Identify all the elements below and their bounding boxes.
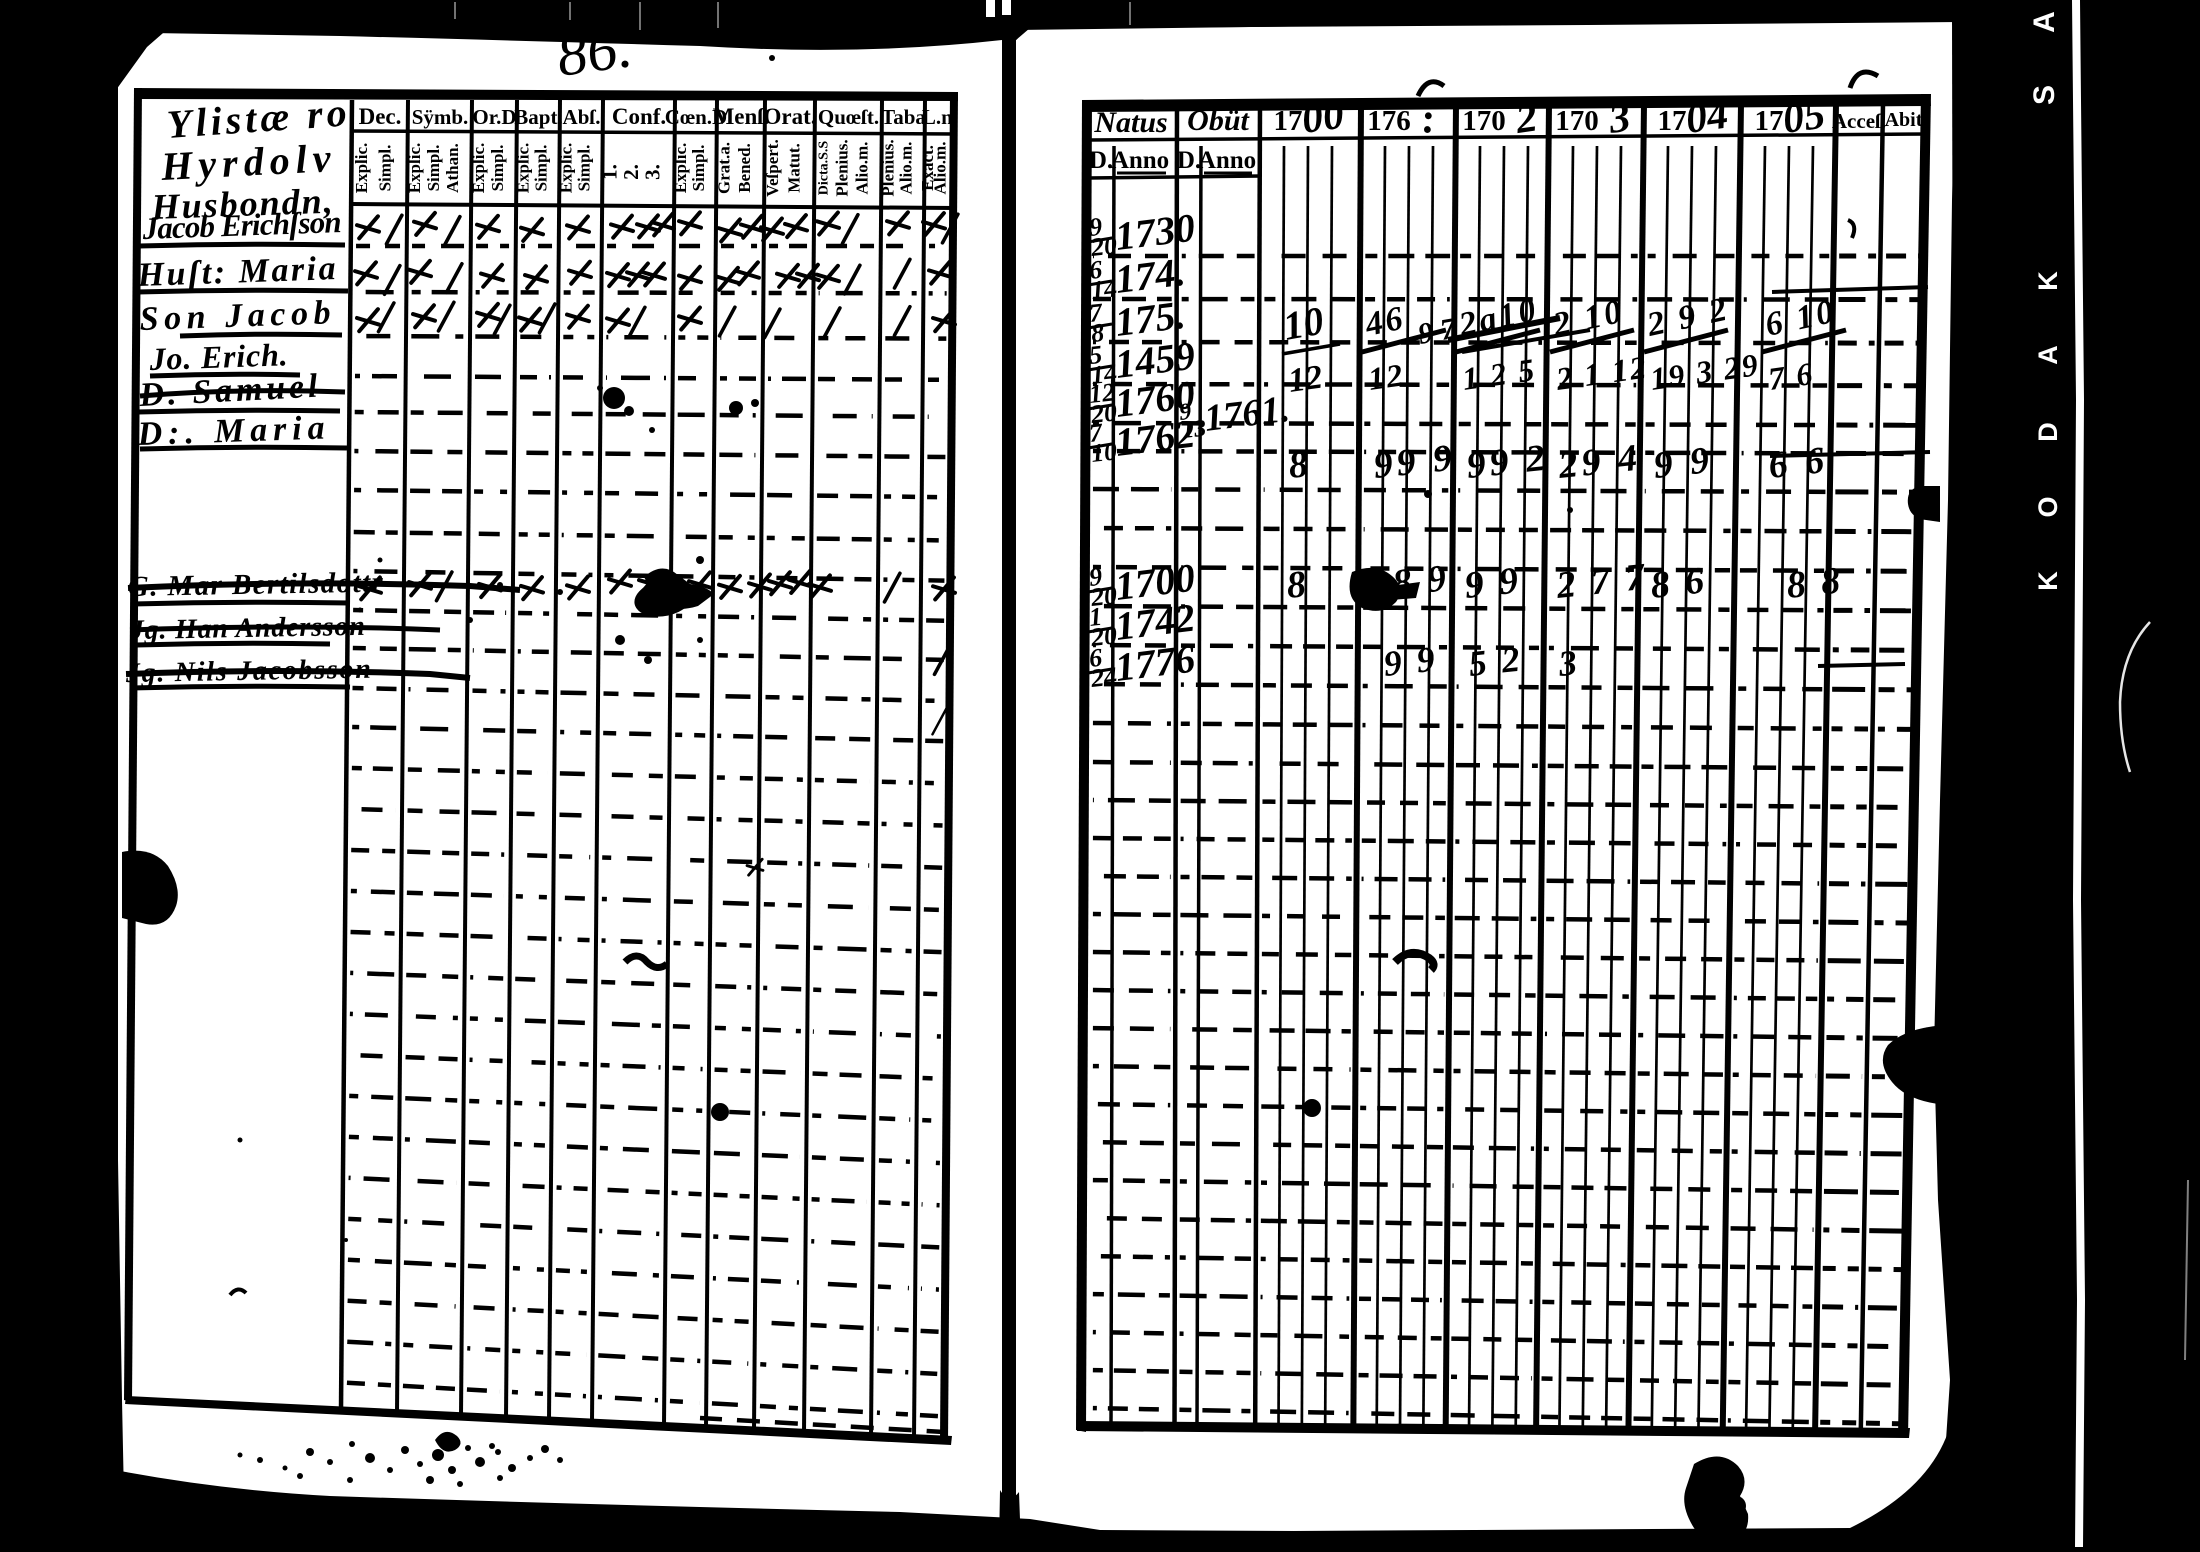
svg-text:Veſpert.: Veſpert. xyxy=(763,139,782,196)
svg-text:12: 12 xyxy=(1286,359,1325,400)
svg-text:Bened.: Bened. xyxy=(735,143,754,193)
svg-text:Explic.: Explic. xyxy=(469,143,488,194)
svg-text:D: D xyxy=(2033,422,2063,442)
svg-text:2.: 2. xyxy=(619,164,643,180)
svg-text:29 4: 29 4 xyxy=(1556,437,1643,487)
svg-text:176: 176 xyxy=(1367,105,1411,137)
svg-text:99 2: 99 2 xyxy=(1465,437,1551,487)
svg-text:A: A xyxy=(2028,11,2061,33)
svg-text:Matut.: Matut. xyxy=(784,143,803,193)
svg-text:Huſt: Maria: Huſt: Maria xyxy=(136,250,338,294)
svg-text:Son Jacob: Son Jacob xyxy=(139,294,335,338)
svg-text:6 6: 6 6 xyxy=(1767,439,1831,487)
svg-text:Abſ.: Abſ. xyxy=(563,105,601,129)
svg-text:17: 17 xyxy=(1658,105,1687,137)
svg-text:Explic.: Explic. xyxy=(405,143,424,194)
svg-text:9 9: 9 9 xyxy=(1652,439,1716,487)
svg-text:5 2: 5 2 xyxy=(1467,639,1525,684)
svg-text:D.: D. xyxy=(1089,147,1113,174)
svg-text:Bapt.: Bapt. xyxy=(514,105,562,129)
svg-text:9 9: 9 9 xyxy=(1463,559,1524,607)
svg-text:Taba: Taba xyxy=(881,105,926,129)
svg-text:Anno: Anno xyxy=(1111,147,1169,174)
svg-text:86.: 86. xyxy=(553,13,636,89)
svg-text:04: 04 xyxy=(1683,92,1731,143)
svg-text:Simpl.: Simpl. xyxy=(488,145,507,192)
svg-text:Simpl.: Simpl. xyxy=(689,145,708,192)
svg-text:Jacob Erichſson: Jacob Erichſson xyxy=(141,204,343,246)
svg-text:3.: 3. xyxy=(640,164,664,180)
svg-text:Dec.: Dec. xyxy=(359,104,402,129)
svg-text:K: K xyxy=(2033,571,2063,591)
svg-text:K: K xyxy=(2033,271,2063,291)
svg-text:13: 13 xyxy=(1181,416,1208,444)
svg-text:Acceſ.: Acceſ. xyxy=(1832,109,1886,133)
svg-text:24: 24 xyxy=(1089,661,1119,693)
svg-text:10: 10 xyxy=(1090,436,1119,468)
svg-text:Explic.: Explic. xyxy=(352,143,371,194)
svg-text:A: A xyxy=(2033,345,2063,365)
svg-text:Quœſt.: Quœſt. xyxy=(818,105,879,129)
svg-text:Alio.m.: Alio.m. xyxy=(852,142,871,195)
svg-text:170: 170 xyxy=(1555,105,1599,137)
svg-text:17: 17 xyxy=(1274,105,1303,137)
svg-text:Plenius.: Plenius. xyxy=(832,139,851,196)
svg-text:Or.D: Or.D xyxy=(472,105,516,129)
svg-text:8: 8 xyxy=(1285,563,1311,607)
svg-text:7 6: 7 6 xyxy=(1766,355,1817,397)
svg-text:3: 3 xyxy=(1556,642,1582,684)
svg-text:10: 10 xyxy=(1280,298,1327,349)
svg-text:12: 12 xyxy=(1366,356,1407,397)
svg-text:Plenius.: Plenius. xyxy=(878,139,897,196)
svg-text:Dicta.S.S: Dicta.S.S xyxy=(816,141,831,196)
svg-text:Athan.: Athan. xyxy=(443,143,462,193)
svg-text:00: 00 xyxy=(1299,92,1347,143)
svg-text:05: 05 xyxy=(1780,92,1828,143)
svg-text:Conf.: Conf. xyxy=(612,104,666,129)
svg-text:Sÿmb.: Sÿmb. xyxy=(412,105,469,129)
svg-text:L.n.: L.n. xyxy=(922,105,958,129)
svg-text:Orat.: Orat. xyxy=(763,104,816,129)
svg-text:Anno: Anno xyxy=(1198,147,1256,174)
svg-text:17: 17 xyxy=(1755,105,1784,137)
svg-text:8 8: 8 8 xyxy=(1785,559,1846,607)
svg-text:Explic.: Explic. xyxy=(513,143,532,194)
svg-text:Abit.: Abit. xyxy=(1885,109,1928,131)
svg-text:Explic.: Explic. xyxy=(556,143,575,194)
svg-text:Simpl.: Simpl. xyxy=(424,145,443,192)
svg-text:8: 8 xyxy=(1287,443,1314,487)
svg-text:Simpl.: Simpl. xyxy=(532,145,551,192)
svg-text:Simpl.: Simpl. xyxy=(376,145,395,192)
svg-text:Alio.m.: Alio.m. xyxy=(931,142,950,195)
svg-text:9 7: 9 7 xyxy=(1415,312,1459,351)
svg-text:1.: 1. xyxy=(597,164,621,180)
svg-text:8 6: 8 6 xyxy=(1649,559,1710,607)
svg-text:S: S xyxy=(2028,85,2061,105)
svg-text:9 9: 9 9 xyxy=(1382,639,1440,684)
svg-text:Alio.m.: Alio.m. xyxy=(897,142,916,195)
svg-text:99 9: 99 9 xyxy=(1372,437,1458,487)
svg-text:O: O xyxy=(2033,496,2063,517)
svg-text:Natus: Natus xyxy=(1093,106,1167,139)
svg-text:170: 170 xyxy=(1462,105,1506,137)
svg-text:Grat.a.: Grat.a. xyxy=(715,142,734,194)
svg-text:Obüt: Obüt xyxy=(1187,104,1250,137)
svg-text:Menſ.: Menſ. xyxy=(713,104,770,129)
svg-text:Simpl.: Simpl. xyxy=(575,145,594,192)
svg-text:Explic.: Explic. xyxy=(671,143,690,194)
